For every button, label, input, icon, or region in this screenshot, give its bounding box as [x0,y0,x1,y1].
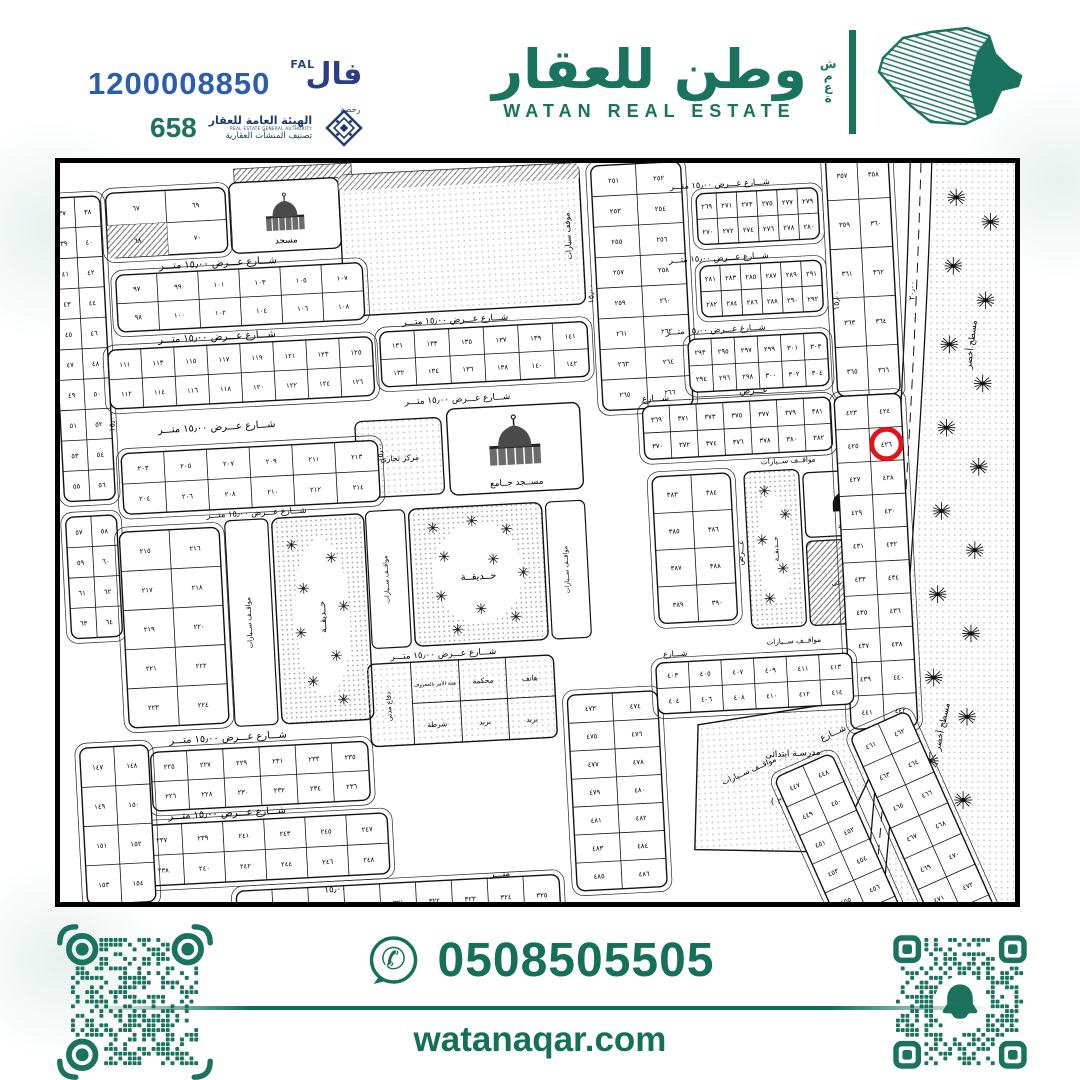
plot-number: ١٤٧ [92,763,104,772]
plot-number: ٤٠٣ [667,671,679,680]
plot-number: ٣٦٠ [870,219,881,228]
plot-number: ٢٨٠ [803,223,814,232]
plot-number: ٤٤ [89,299,97,307]
plot-number: ٥٥ [73,482,81,490]
plot-number: ٢٧٢ [722,227,734,236]
plot-number: ٢٨٩ [786,271,798,280]
plot-number: ٢٠٤ [139,494,151,503]
plot-number: ٩٩ [174,283,182,291]
plot-number: ٥٤ [96,451,104,459]
plot-number: ٢٧٦ [763,225,775,234]
plot-number: ٢٨٨ [767,297,779,306]
rega-diamond-icon [324,108,364,148]
palm-tree-icon [925,669,943,687]
plot-number: ٤٢٦ [881,440,893,449]
plot-number: ٢٥٧ [613,268,625,277]
plot-number: ٢٠٧ [223,460,235,469]
plot-number: ٤٤٠ [893,673,904,682]
plot-number: ٢٩٤ [696,375,708,384]
street-label: شـــارع [642,393,670,404]
plot-number: ٣٢٤ [500,893,512,902]
plot-block: ٢٢٥٢٢٧٢٢٩٢٣١٢٣٣٢٣٥٢٢٦٢٢٨٢٣٠٢٣٢٢٣٤٢٣٦ [145,736,376,816]
plot-number: ٤٢٣ [846,409,858,418]
plot-number: ٤١٢ [799,690,811,699]
plot-number: ٢٢١ [146,664,157,673]
plot-number: ١٥٢ [130,840,142,849]
palm-tree-icon [974,375,992,393]
plot-number: ١١٨ [220,385,232,394]
plot-number: ٤٥ [65,331,73,339]
plot-number: ٥٢ [95,420,103,428]
plot-number: ٢٩٨ [742,372,754,381]
plot-number: ٣٧٢ [679,441,691,450]
plot-number: ٣٥٩ [839,221,851,230]
plot-number: ٣٨١ [812,407,823,416]
plot-number: ١٠٠ [174,311,185,320]
plot-number: ٢٢٧ [200,761,212,770]
plot-number: ٤١٠ [766,692,777,701]
plot-number: ٣٢١ [393,899,404,902]
plot-number: ٣٨٧ [670,564,682,573]
plot-number: ٥٦ [98,481,106,489]
plot-block: ٦٧٦٩٦٨٧٠ [100,182,233,263]
palm-tree-icon [929,585,947,603]
plot-number: ٤٧٤ [630,702,642,711]
plot-number: ١١٣ [152,359,164,368]
plot-number: ٢٤٤ [281,860,293,869]
plot-block: ١٤٧١٤٨١٤٩١٥٠١٥١١٥٢١٥٣١٥٤ [74,740,161,902]
plot-number: ٤٨٥ [593,872,605,881]
plot-number: ٢٣٠ [237,788,248,797]
west-park: مواقــف ســيارات حــديقــة [224,514,374,727]
plot-number: ٢٣٢ [274,786,286,795]
plot-number: ٢٩٣ [694,348,706,357]
plot-block: ٩٧٩٩١٠١١٠٣١٠٥١٠٧٩٨١٠٠١٠٢١٠٤١٠٦١٠٨ [110,257,370,337]
plot-block: ١١١١١٣١١٥١١٧١١٩١٢١١٢٣١٢٥١١٢١١٤١١٦١١٨١٢٠١… [103,331,380,414]
street-label: ١٥٫٠٠ [375,442,385,462]
plot-number: ١٣١ [392,341,403,350]
plot-number: ٤٢٨ [882,474,894,483]
palm-tree-icon [966,541,984,559]
plot-number: ١٠٢ [215,309,227,318]
plot-number: ٣٨٩ [672,601,684,610]
plot-number: ٣٠١ [787,344,798,353]
plot-number: ٤٠٤ [668,697,680,706]
brand-divider-bar [849,30,856,134]
plot-number: ٢٧٨ [783,224,795,233]
plot-number: ١٥٠ [128,801,139,810]
svg-text:✆: ✆ [381,942,406,977]
street-label: شـــارع [663,649,688,659]
palm-tree-icon [933,502,951,520]
plot-number: ٤٠٨ [733,693,745,702]
plot-number: ٢٢٠ [193,623,204,632]
plot-number: ١٥٣ [98,881,110,890]
plot-number: ٢١٩ [144,625,156,634]
plot-number: ٢٩١ [806,270,817,279]
plot-number: ٤٨٢ [635,814,647,823]
plot-number: ٩٧ [133,285,141,293]
plot-number: ٢١٦ [189,544,201,553]
plot-number: ٣٨٠ [786,435,797,444]
plot-number: ١٤٨ [126,762,138,771]
plot-number: ٢٩٩ [764,345,776,354]
plot-number: ٣٩٠ [712,599,723,608]
plot-number: ٤٨١ [590,816,601,825]
plot-number: ٢٤٢ [240,862,252,871]
plot-number: ٢٦١ [616,329,627,338]
plot-number: ٣٠٤ [811,369,823,378]
plot-number: ٤٧٥ [586,732,598,741]
brand-title-arabic: وطن للعقار [492,42,807,99]
plot-number: ٣٨٣ [667,491,679,500]
plot-number: ٤٨٦ [638,870,650,879]
street-label: ١٥٫٠٠ [832,291,841,310]
plot-number: ٦٠ [102,557,110,565]
rega-subtitle: تصنيف المنشآت العقارية [225,132,312,142]
plot-number: ٤٧٨ [633,758,645,767]
fal-logo-ar: فال [305,60,362,90]
plot-number: ٢٩٦ [719,374,731,383]
plot-number: ٤٣٠ [884,507,895,516]
plot-number: ٤٣٦ [889,607,901,616]
plot-number: ٤٠٦ [701,695,713,704]
street-label: مواقــف ســيارات [766,635,821,647]
contact-phone: 0508505505 [438,933,715,988]
plot-number: ٣٢٢ [429,897,441,902]
plot-block: ٣٥٧٣٥٨٣٥٩٣٦٠٣٦١٣٦٢٣٦٣٣٦٤٣٦٥٣٦٦ [820,163,906,402]
plot-number: ٢٥٦ [656,235,668,244]
plot-number: ٢٥٥ [611,238,623,247]
palm-tree-icon [958,708,976,726]
plot-number: ٥١ [69,422,77,430]
plot-number: ٢٨٥ [745,273,757,282]
plot-number: ١١٢ [121,390,133,399]
fal-logo: FAL فال رخصة [284,58,362,110]
plot-number: ٢١٣ [351,453,363,462]
palm-tree-icon [941,335,959,353]
street-label: شـــارع عـــرض ١٥٫٠٠ متـــر [669,176,770,191]
plot-number: ٢٣٩ [197,834,209,843]
street-label: عـــرض [736,540,746,566]
plot-number: ٤١٤ [831,688,843,697]
plot-number: ٦٣ [80,619,88,627]
plot-number: ١٠١ [213,280,224,289]
plot-number: ٤٧٧ [588,760,600,769]
civil-defense-label: دفاع مدنى [384,692,394,722]
plot-number: ٤١١ [797,664,808,673]
poster-page: 1200008850 FAL فال رخصة 658 الهيئة العام… [0,0,1080,1080]
palm-tree-icon [938,419,956,437]
plot-number: ٤١٣ [830,663,842,672]
plot-number: ١١٩ [251,354,263,363]
plot-number: ١٣٥ [461,338,473,347]
police-label: شرطة [427,719,447,729]
plot-number: ٤٨ [92,360,100,368]
plot-number: ٢٢٨ [201,790,213,799]
plot-number: ١٥٤ [132,879,144,888]
street-label: شـــارع عـــرض ١٥٫٠٠ متـــر [157,419,276,436]
plot-number: ٣٧٥ [731,411,743,420]
plot-number: ٢١٧ [141,586,153,595]
plot-number: ٣٨٤ [706,488,718,497]
subdivision-map: مسطح أخضرمسطح أخضر٢٠٫٠٠ مسجد موقف سيارات… [60,163,1015,902]
street-label: ١٥٫٠٠ [324,884,346,895]
plot-number: ١٢٥ [350,348,362,357]
plot-number: ٢٧٥ [762,199,774,208]
post-label: بريد [526,714,538,724]
plot-number: ١٣٨ [497,363,509,372]
plot-number: ٣٧١ [677,414,688,423]
plot-number: ٣٧٨ [759,436,771,445]
plot-number: ٢٩٢ [807,295,819,304]
plot-number: ٤٣٩ [860,675,872,684]
street-label: عـــرض [739,385,768,396]
plot-number: ٢٧٤ [743,226,755,235]
plot-number: ١٣٧ [495,336,507,345]
plot-number: ٤٣١ [853,542,864,551]
court-label: محكمة [472,676,493,686]
plot-number: ٢٣٣ [308,755,320,764]
plot-number: ٤٣٨ [891,640,903,649]
plot-number: ٤٨٣ [592,844,604,853]
plot-number: ٣٥٧ [836,172,848,181]
plot-number: ٤٧٦ [631,730,643,739]
street-label: مواقــف ســيارات [761,454,816,466]
plot-number: ٣٦٤ [875,317,887,326]
plot-number: ٢٨٦ [746,298,758,307]
rega-classification-row: 658 الهيئة العامة للعقار REAL ESTATE GEN… [150,108,364,148]
palm-tree-icon [970,458,988,476]
palm-tree-icon [947,188,965,206]
plot-number: ٢١٨ [191,583,203,592]
plot-number: ٤٢ [87,269,95,277]
footer-divider [88,1006,992,1010]
plot-number: ١٠٨ [338,302,350,311]
plot-number: ٢٤٧ [361,825,373,834]
central-park-label: حــديقــة [460,570,496,583]
plot-number: ٢٧٩ [802,197,814,206]
plot-number: ٢٤٣ [279,830,291,839]
plot-number: ١٢٤ [319,379,331,388]
brand-title-english: WATAN REAL ESTATE [492,101,807,122]
plot-number: ٢٣٦ [346,782,358,791]
plot-number: ٢٥٢ [653,174,665,183]
plot-block: ٢٦٩٢٧١٢٧٣٢٧٥٢٧٧٢٧٩٢٧٠٢٧٢٢٧٤٢٧٦٢٧٨٢٨٠ [691,182,825,250]
plot-number: ٦٨ [134,237,142,245]
plot-block: ٣٨٣٣٨٤٣٨٥٣٨٦٣٨٧٣٨٨٣٨٩٣٩٠ [647,468,743,629]
plot-number: ٢٣٥ [344,753,356,762]
plot-number: ٤٧ [66,361,74,369]
plot-number: ٤٣٣ [854,575,866,584]
plot-number: ٧٠ [194,234,202,242]
plot-number: ٢٥٤ [655,205,667,214]
plot-number: ٢٩٠ [787,296,798,305]
palm-tree-icon [982,213,1000,231]
plot-number: ٣٧٠ [652,442,663,451]
plot-number: ١٠٥ [295,276,307,285]
plot-number: ٢٧٧ [782,198,794,207]
plot-number: ٢٦٣ [618,360,630,369]
website-url: watanaqar.com [0,1020,1080,1060]
plot-number: ١٣٤ [428,367,440,376]
post-label: بريد [479,717,491,727]
plot-number: ٤٢٥ [847,442,859,451]
central-park: مواقــف ســيارات حــديقــة مواقــف ســيا… [365,500,591,649]
plot-number: ١٣٣ [426,339,438,348]
plot-number: ٢٨٧ [765,272,777,281]
plot-number: ٢٦٠ [659,296,670,305]
plot-number: ٢٦٥ [619,391,631,400]
plot-number: ٣٢٥ [536,891,548,900]
plot-number: ٥٣ [71,452,79,460]
plot-number: ٢٢٩ [236,759,248,768]
plot-number: ٢٨٢ [706,300,718,309]
plot-number: ٣٥٨ [868,170,880,179]
plot-number: ٤٠٩ [765,666,777,675]
plot-number: ٥٠ [93,390,101,398]
brand-side-word: شمعة [820,59,837,105]
plot-number: ١١٧ [218,355,230,364]
plot-number: ٣٧٤ [706,439,718,448]
plot-number: ٣٧٣ [704,413,716,422]
plot-number: ٤٣٧ [858,642,870,651]
plot-number: ٣٧٦ [733,438,745,447]
plot-number: ٥٩ [77,559,85,567]
plot-number: ٢٤٦ [322,858,334,867]
plot-number: ٢٢٤ [198,701,210,710]
plot-number: ٤٨٠ [634,786,645,795]
plot-number: ٣٦٩ [651,416,663,425]
plot-number: ٢٧٠ [702,228,713,237]
east-park-label: حــديقــة [772,536,781,561]
plot-number: ١٢٦ [352,378,364,387]
plot-number: ٣٦٦ [878,366,890,375]
plot-number: ١٠٧ [337,274,349,283]
plot-number: ٣٧ [60,209,66,217]
plot-number: ١١٥ [185,357,197,366]
plot-block: ٢٥١٢٥٢٢٥٣٢٥٤٢٥٥٢٥٦٢٥٧٢٥٨٢٥٩٢٦٠٢٦١٢٦٢٢٦٣٢… [585,163,698,416]
street-label: ١٥٫٠٠ [586,284,595,304]
saudi-map-logo [869,24,1037,140]
plot-number: ٦٧ [132,204,140,212]
plot-number: ٢٤١ [238,832,249,841]
mosque-label: مسجد [275,235,299,246]
plot-number: ٢٥٩ [614,299,626,308]
plot-number: ٣٠٠ [765,371,776,380]
palm-tree-icon [962,625,980,643]
plot-number: ٣٧٧ [758,410,770,419]
plot-number: ٤٣٢ [886,540,898,549]
plot-number: ١٤٠ [531,361,542,370]
palm-tree-icon [954,791,972,809]
plot-number: ٤٢٧ [849,475,861,484]
plot-number: ٦٤ [105,618,113,626]
plot-number: ٢٥٣ [610,207,622,216]
plot-number: ٢٢٣ [148,703,160,712]
plot-number: ٢٩٥ [717,347,729,356]
plot-number: ٣٠٢ [788,370,800,379]
plot-number: ٣٦٣ [844,319,856,328]
plot-number: ١١١ [119,360,130,369]
plot-number: ٢١١ [308,455,319,464]
plot-number: ٣٧٩ [785,408,797,417]
map-frame: مسطح أخضرمسطح أخضر٢٠٫٠٠ مسجد موقف سيارات… [55,158,1020,907]
parking-lot-north: موقف سيارات [338,163,586,316]
plot-number: ١١٦ [187,386,199,395]
plot-number: ٣٠٣ [810,342,822,351]
street-label: شـــارع عـــرض ١٥٫٠٠ متـــر [403,392,510,408]
whatsapp-icon: ✆ [366,932,422,988]
fal-license-number: 1200008850 [88,66,270,102]
plot-number: ٢٧١ [721,201,732,210]
plot-number: ٢٤٨ [363,856,375,865]
plot-number: ٤٩ [68,391,76,399]
plot-number: ٢٣١ [272,757,283,766]
plot-number: ٦٢ [104,588,112,596]
plot-number: ٣٨٢ [813,434,825,443]
plot-number: ٢٠٦ [182,492,194,501]
plot-block: ٢٨١٢٨٣٢٨٥٢٨٧٢٨٩٢٩١٢٨٢٢٨٤٢٨٦٢٨٨٢٩٠٢٩٢ [694,255,828,323]
plot-number: ٢١٤ [353,483,365,492]
plot-number: ٢٦٤ [663,358,675,367]
plot-number: ١٢٠ [253,383,264,392]
palm-tree-icon [944,257,962,275]
plot-number: ٤٣٤ [888,573,900,582]
plot-number: ٣٦٥ [847,367,859,376]
rega-number: 658 [150,112,197,144]
plot-number: ٦٩ [192,201,200,209]
plot-number: ١٥١ [96,842,107,851]
plot-number: ١٤٢ [566,360,578,369]
plot-number: ٢٠٣ [137,464,149,473]
brand-header: وطن للعقار WATAN REAL ESTATE شمعة [492,24,1037,140]
plot-number: ٢٨٣ [725,274,737,283]
plot-number: ١٣٢ [393,369,405,378]
plot-number: ٤٤١ [861,708,872,717]
plot-number: ٣٢٠ [357,901,368,902]
plot-number: ٣٦١ [841,270,852,279]
plot-number: ١٢٣ [317,350,329,359]
plot-number: ٢٩٧ [741,346,753,355]
plot-number: ٢٧٣ [741,200,753,209]
telephone-label: هاتف [522,673,538,683]
plot-number: ١٠٦ [297,305,309,314]
plot-number: ٢٠٩ [266,457,278,466]
plot-block: ٢١٥٢١٦٢١٧٢١٨٢١٩٢٢٠٢٢١٢٢٢٢٢٣٢٢٤ [114,522,234,733]
fal-license-row: 1200008850 FAL فال رخصة [88,58,362,110]
plot-number: ٤٨٤ [637,842,649,851]
plot-number: ٤٣ [63,300,71,308]
plot-block: ٥٧٥٨٥٩٦٠٦١٦٢٦٣٦٤ [60,510,128,644]
plot-number: ٤٠ [85,238,93,246]
street-label: ٢٠٫٠٠ [907,280,917,300]
street-label: متـــر [489,869,511,880]
plot-number: ١٠٣ [254,278,266,287]
services-block: دفاع مدنى هيئة الأمر بالمعروف محكمة هاتف… [367,655,557,747]
plot-number: ١٠٤ [256,307,268,316]
plot-number: ٢٤٠ [199,864,210,873]
plot-number: ٤١ [62,270,70,278]
plot-number: ٣٨٥ [669,527,681,536]
plot-number: ٤٢٩ [851,509,863,518]
phone-row: ✆ 0508505505 [366,932,715,988]
plot-number: ٢٨١ [705,275,716,284]
plot-number: ٢٤٥ [320,827,332,836]
plot-number: ٢٨٤ [726,299,738,308]
palm-tree-icon [977,291,995,309]
plot-number: ٢٢٦ [165,792,177,801]
